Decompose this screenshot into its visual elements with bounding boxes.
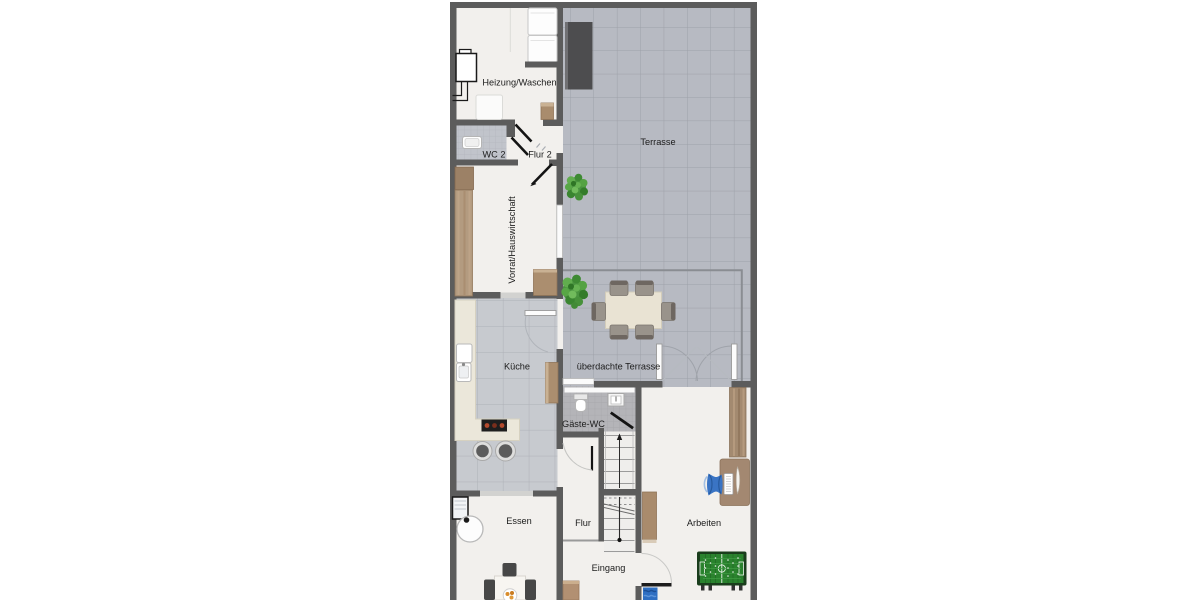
svg-text:Gäste-WC: Gäste-WC [562,419,605,429]
svg-text:WC 2: WC 2 [483,150,506,160]
svg-text:Essen: Essen [506,516,532,526]
svg-text:Arbeiten: Arbeiten [687,518,721,528]
svg-text:Heizung/Waschen: Heizung/Waschen [482,78,556,88]
svg-text:Flur: Flur [575,518,591,528]
svg-text:Terrasse: Terrasse [640,137,675,147]
svg-text:Eingang: Eingang [592,563,626,573]
svg-text:Flur 2: Flur 2 [528,150,552,160]
svg-text:Küche: Küche [504,362,530,372]
svg-text:überdachte Terrasse: überdachte Terrasse [577,362,661,372]
svg-text:Vorrat/Hauswirtschaft: Vorrat/Hauswirtschaft [507,196,517,284]
